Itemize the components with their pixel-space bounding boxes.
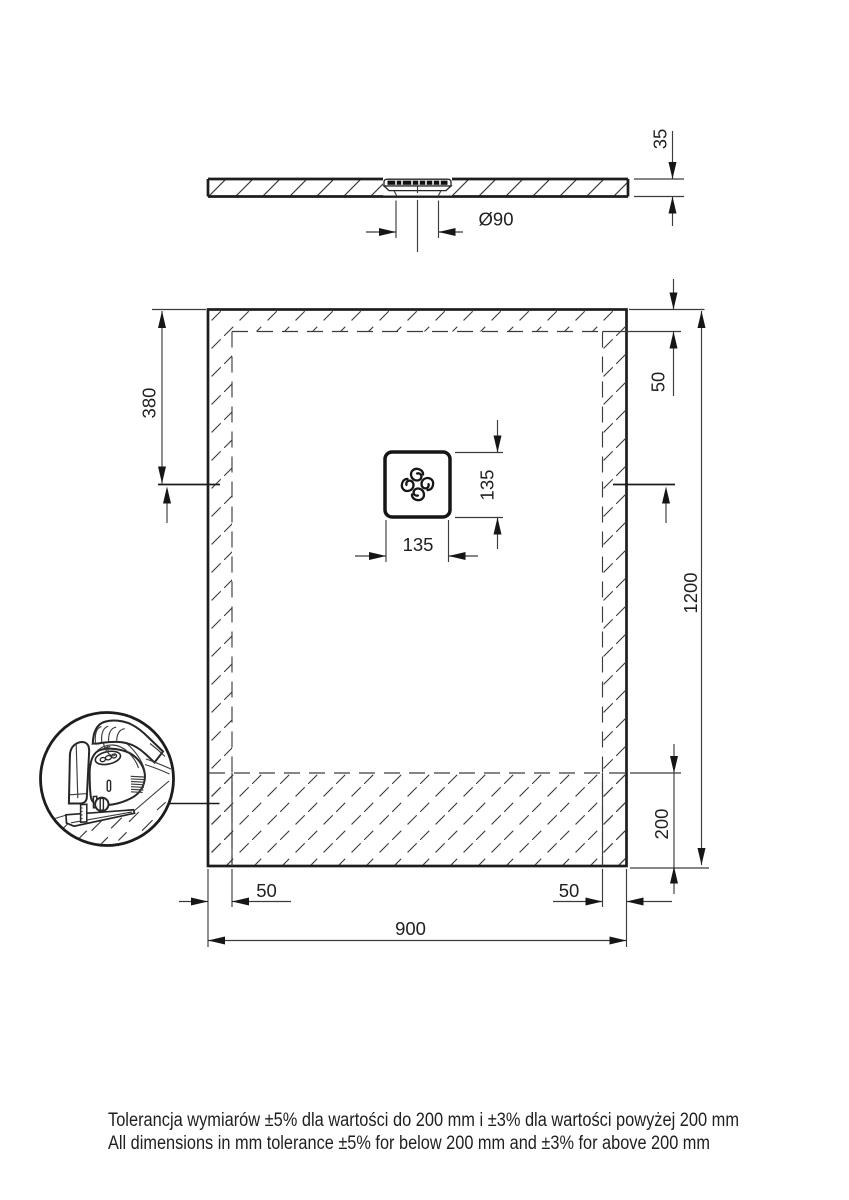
svg-text:200: 200 (651, 809, 672, 840)
svg-text:Ø90: Ø90 (479, 209, 514, 230)
svg-text:1200: 1200 (680, 572, 701, 613)
svg-text:50: 50 (648, 372, 669, 393)
svg-text:135: 135 (403, 534, 434, 555)
svg-text:135: 135 (477, 470, 498, 501)
svg-text:50: 50 (559, 880, 580, 901)
svg-text:380: 380 (139, 388, 160, 419)
svg-text:900: 900 (395, 918, 426, 939)
svg-text:35: 35 (650, 129, 671, 150)
svg-text:All dimensions in mm tolerance: All dimensions in mm tolerance ±5% for b… (108, 1133, 710, 1154)
svg-text:Tolerancja wymiarów ±5% dla wa: Tolerancja wymiarów ±5% dla wartości do … (108, 1110, 739, 1131)
svg-text:50: 50 (256, 880, 277, 901)
